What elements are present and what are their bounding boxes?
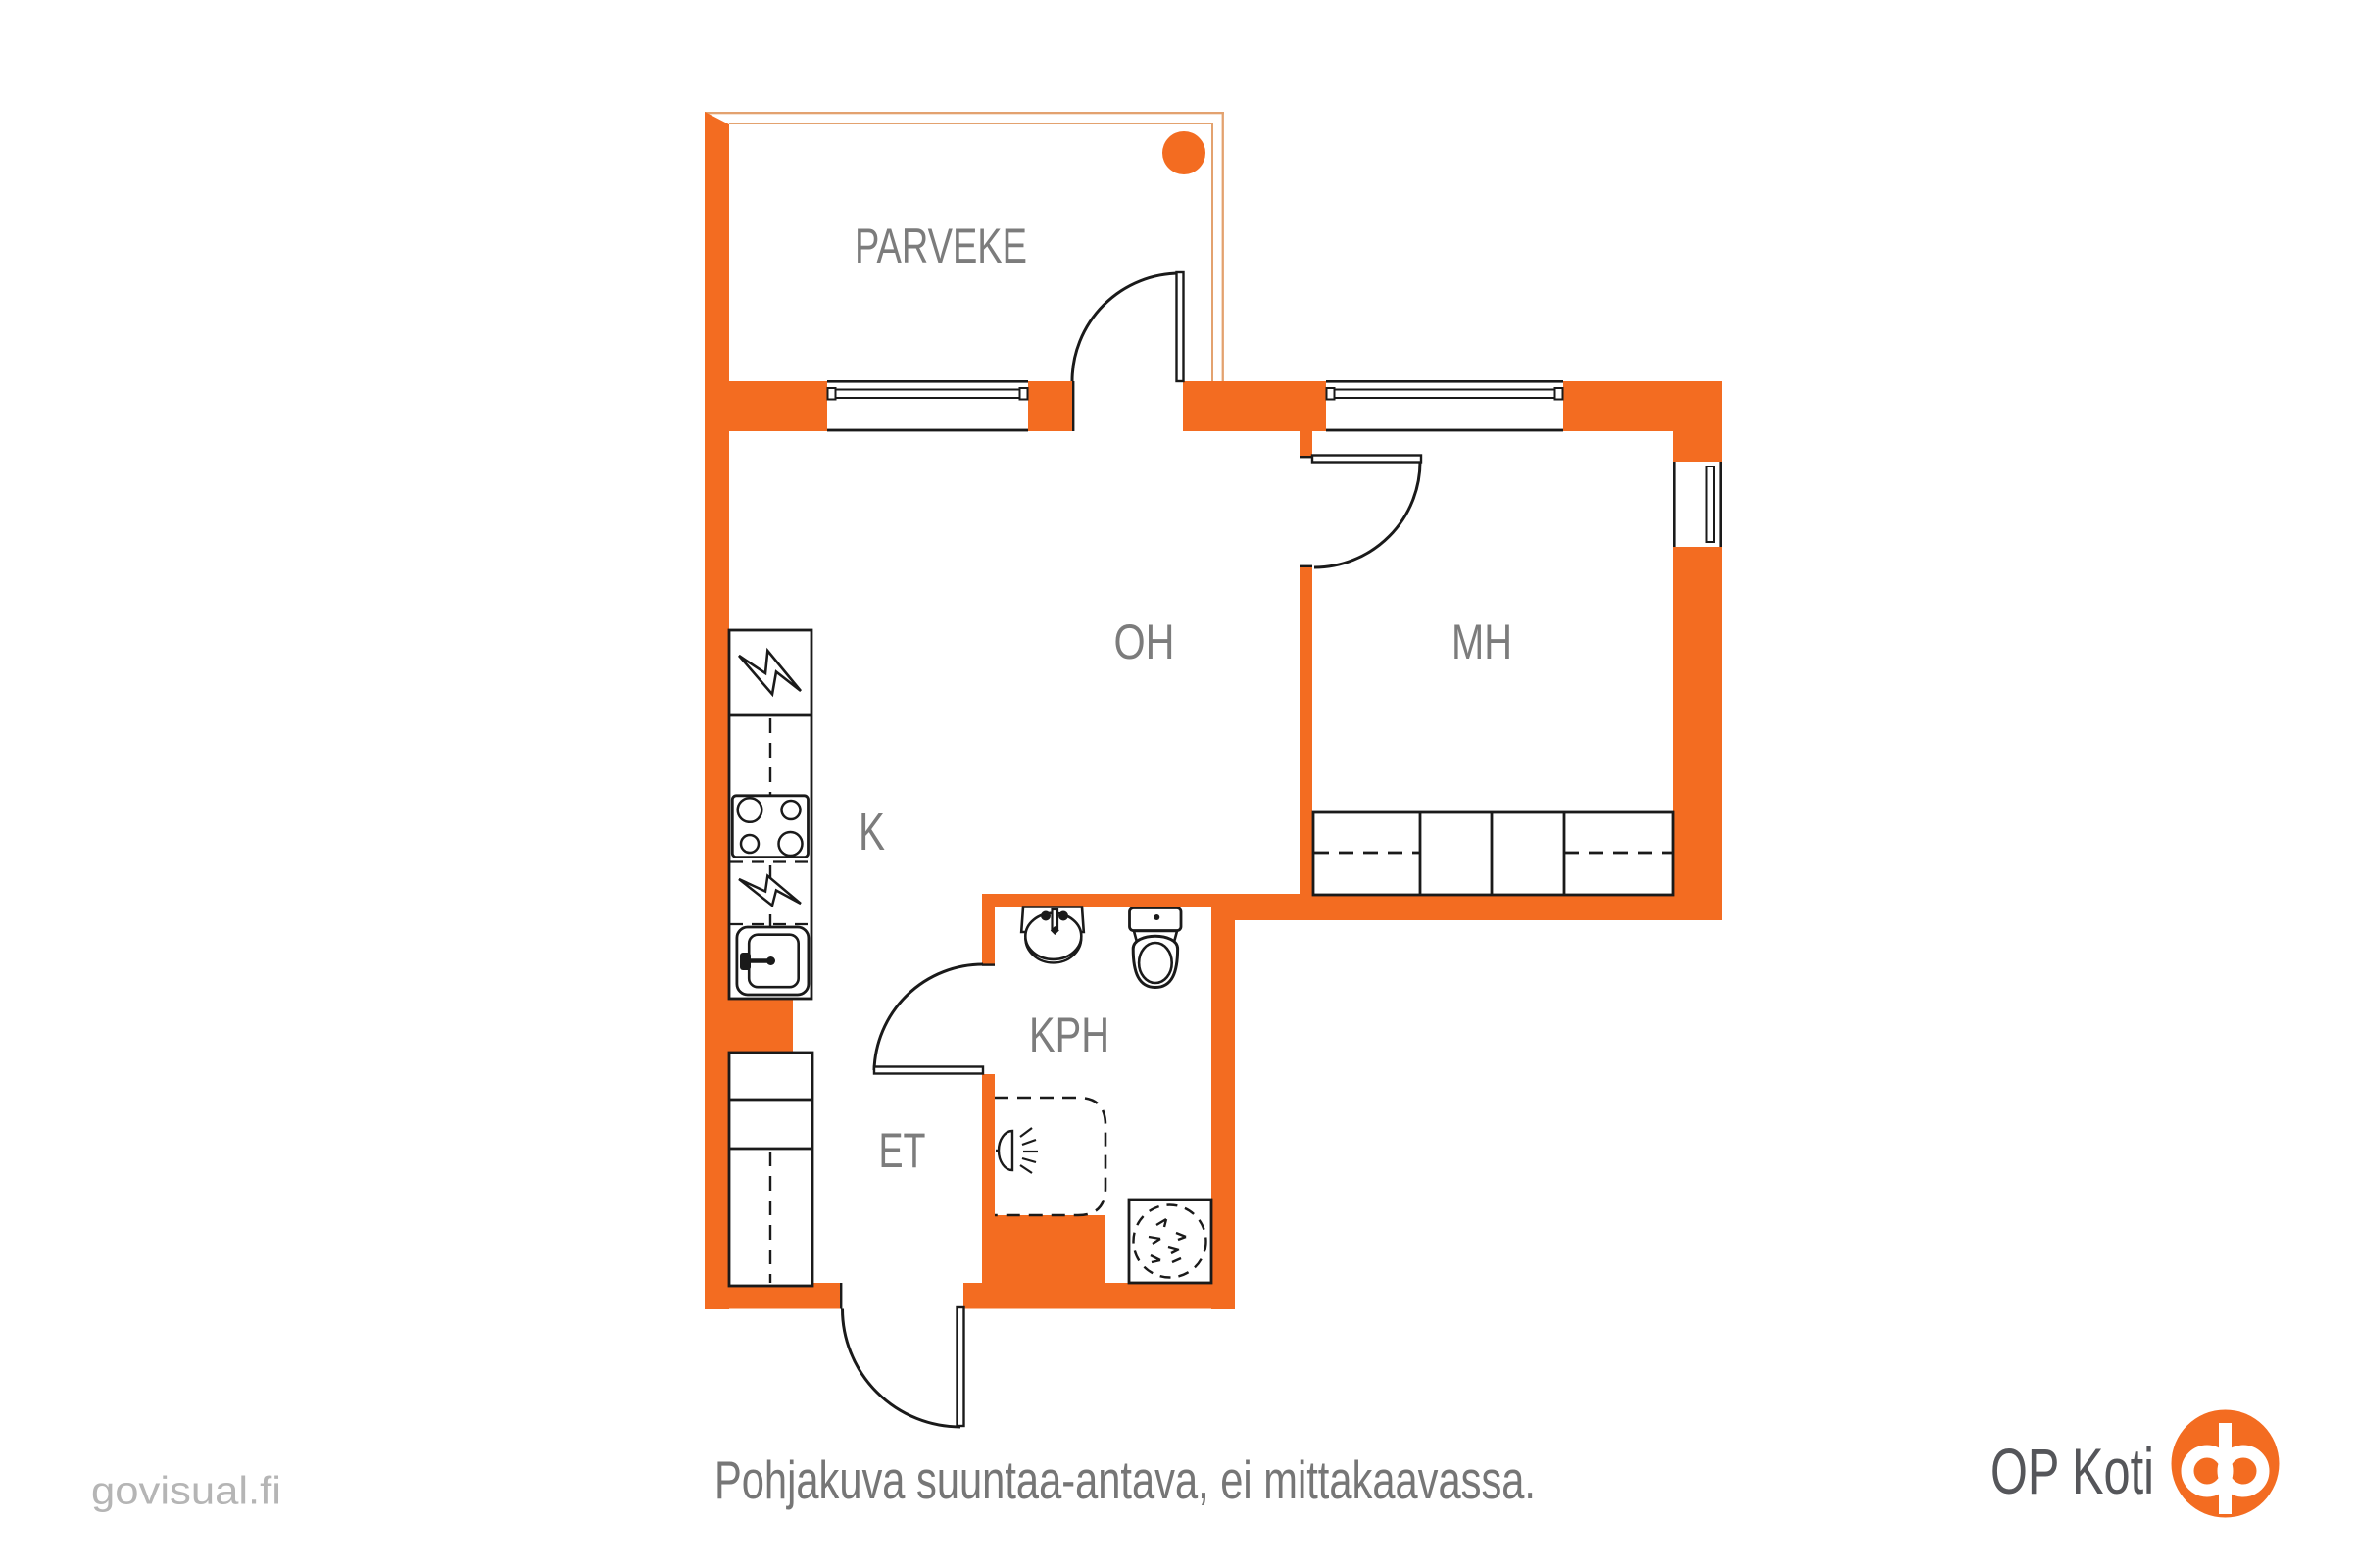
svg-text:Pohjakuva suuntaa-antava, ei m: Pohjakuva suuntaa-antava, ei mittakaavas… (714, 1449, 1536, 1510)
svg-text:PARVEKE: PARVEKE (855, 219, 1027, 273)
svg-text:OP Koti: OP Koti (1990, 1435, 2154, 1507)
svg-text:KPH: KPH (1029, 1007, 1109, 1062)
svg-text:MH: MH (1451, 614, 1512, 669)
svg-text:K: K (859, 803, 885, 861)
svg-text:govisual.fi: govisual.fi (91, 1470, 281, 1513)
svg-text:ET: ET (879, 1123, 926, 1178)
svg-text:OH: OH (1114, 614, 1175, 669)
